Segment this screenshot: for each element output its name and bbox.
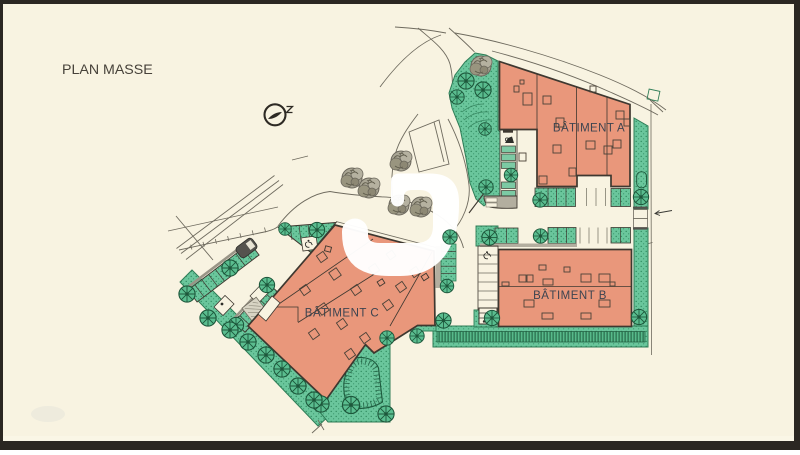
svg-text:BÂTIMENT B: BÂTIMENT B [533,289,607,302]
svg-text:PLAN MASSE: PLAN MASSE [62,62,153,78]
svg-text:BÂTIMENT C: BÂTIMENT C [305,307,379,320]
